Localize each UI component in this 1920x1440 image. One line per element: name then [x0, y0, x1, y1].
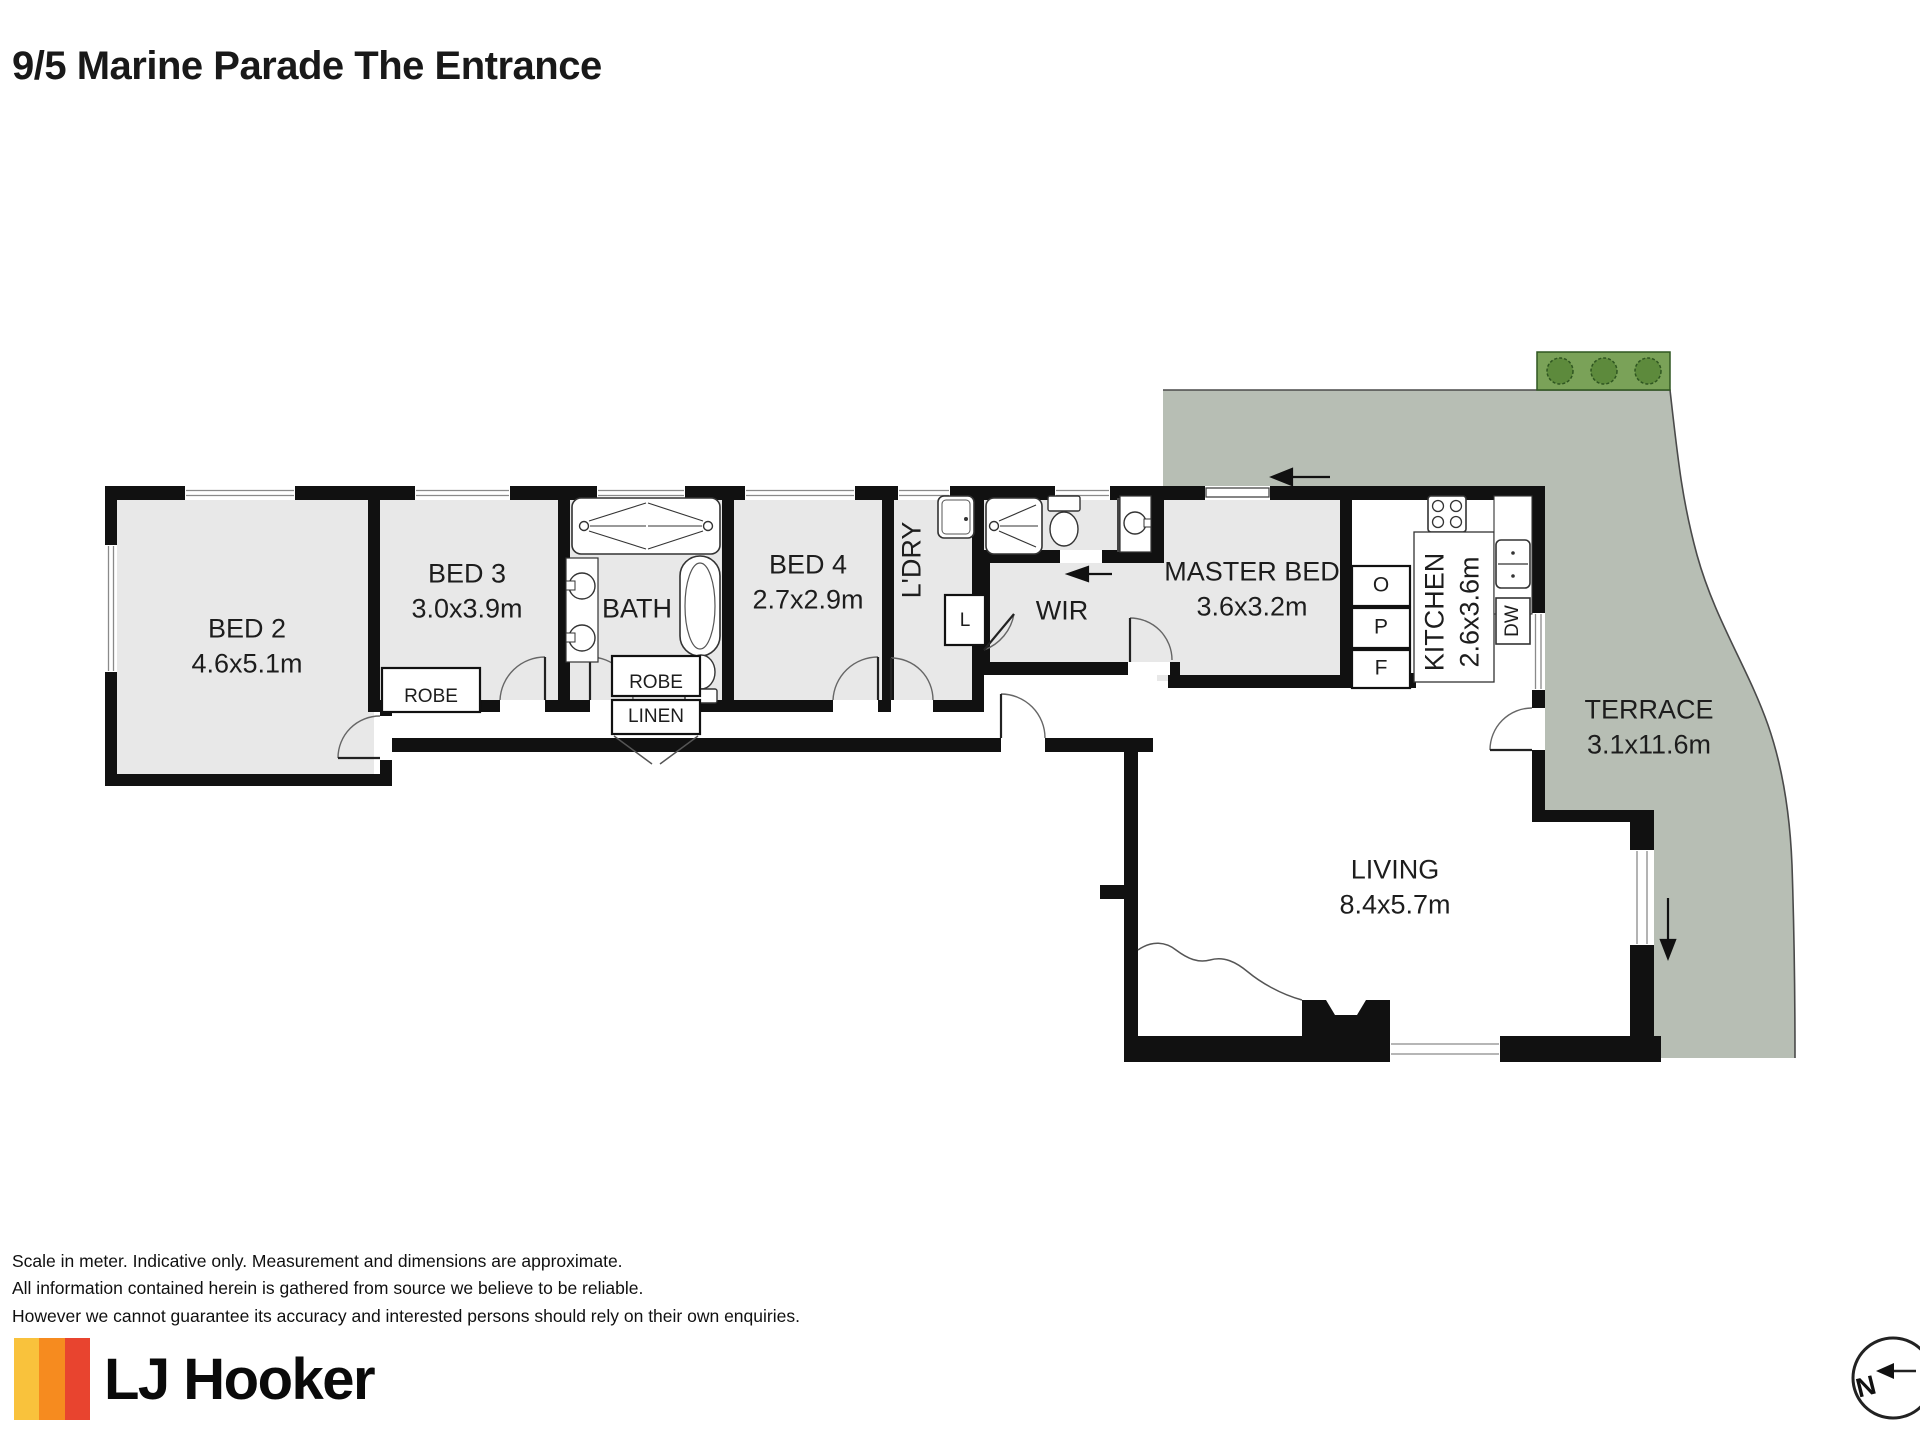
- bath-vanity-icon: [566, 558, 598, 662]
- label-robe-bed4: ROBE: [629, 671, 683, 695]
- cooktop-icon: [1428, 496, 1466, 532]
- lj-hooker-logo: LJ Hooker: [14, 1338, 374, 1420]
- ensuite-basin-icon: [1120, 496, 1151, 552]
- logo-stripes-icon: [14, 1338, 90, 1420]
- floorplan-page: 9/5 Marine Parade The Entrance: [0, 0, 1920, 1440]
- ensuite-shower-icon: [986, 498, 1042, 554]
- label-linen-cupboard: L: [960, 609, 971, 633]
- label-dishwasher: DW: [1501, 605, 1525, 637]
- living-curve: [1138, 943, 1302, 1000]
- label-robe-bed3: ROBE: [404, 685, 458, 709]
- room-label-wir: WIR: [1036, 594, 1088, 629]
- kitchen-sink-icon: [1496, 540, 1530, 588]
- laundry-tub-icon: [938, 496, 974, 538]
- room-label-bed2: BED 24.6x5.1m: [191, 611, 302, 680]
- planter-icon: [1537, 352, 1670, 390]
- room-label-terrace: TERRACE3.1x11.6m: [1584, 692, 1713, 761]
- room-label-bed4: BED 42.7x2.9m: [752, 547, 863, 616]
- ensuite-toilet-icon: [1048, 496, 1080, 546]
- room-label-bed3: BED 33.0x3.9m: [411, 556, 522, 625]
- disclaimer-text: Scale in meter. Indicative only. Measure…: [12, 1250, 800, 1332]
- brand-name: LJ Hooker: [104, 1346, 374, 1413]
- bath-shower-icon: [572, 498, 720, 554]
- label-pantry: P: [1374, 615, 1388, 642]
- label-oven: O: [1373, 573, 1389, 600]
- room-label-laundry: L'DRY: [895, 522, 930, 599]
- room-label-kitchen: KITCHEN2.6x3.6m: [1417, 553, 1486, 672]
- label-fridge: F: [1375, 656, 1388, 683]
- room-label-master: MASTER BED3.6x3.2m: [1164, 554, 1340, 623]
- room-label-bath: BATH: [602, 592, 672, 627]
- label-linen: LINEN: [628, 705, 684, 729]
- room-label-living: LIVING8.4x5.7m: [1339, 852, 1450, 921]
- bathtub-icon: [680, 556, 720, 656]
